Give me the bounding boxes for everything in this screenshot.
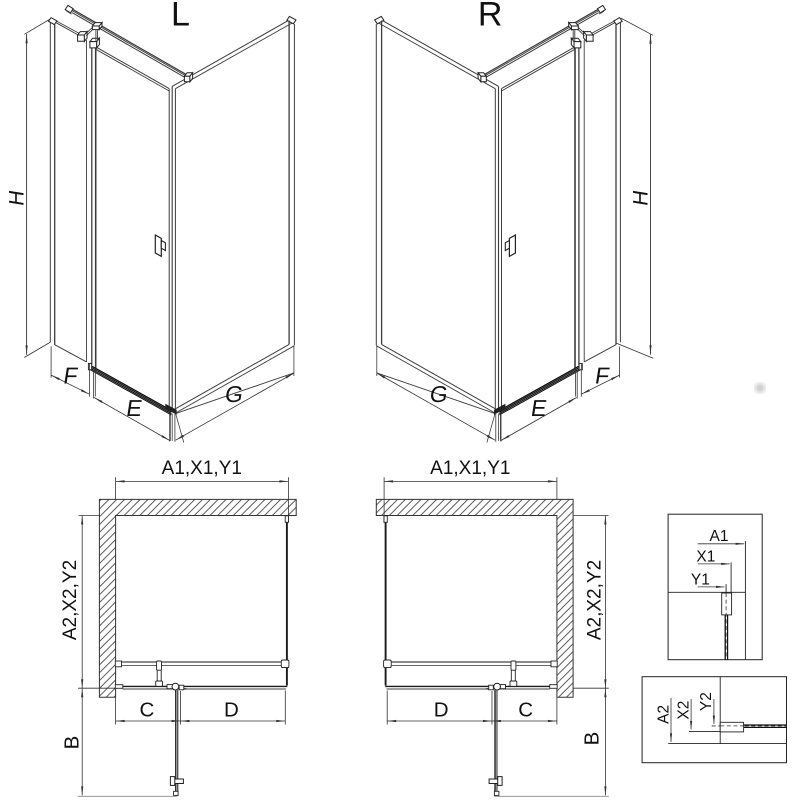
svg-text:D: D (224, 699, 239, 722)
svg-text:C: C (139, 699, 154, 722)
svg-text:L: L (171, 0, 190, 34)
svg-text:B: B (581, 732, 604, 746)
svg-text:R: R (478, 0, 503, 34)
svg-text:Y2: Y2 (698, 692, 715, 711)
svg-text:A2,X2,Y2: A2,X2,Y2 (60, 560, 81, 640)
svg-text:A2,X2,Y2: A2,X2,Y2 (584, 560, 605, 640)
svg-text:Y1: Y1 (691, 571, 710, 588)
svg-text:X2: X2 (676, 701, 693, 720)
svg-text:B: B (61, 736, 84, 750)
svg-text:X1: X1 (696, 548, 715, 565)
svg-text:A1,X1,Y1: A1,X1,Y1 (430, 458, 510, 479)
svg-text:A1: A1 (710, 528, 729, 545)
svg-text:D: D (434, 699, 449, 722)
svg-text:C: C (518, 699, 533, 722)
svg-text:A1,X1,Y1: A1,X1,Y1 (162, 458, 242, 479)
svg-text:A2: A2 (655, 705, 672, 724)
